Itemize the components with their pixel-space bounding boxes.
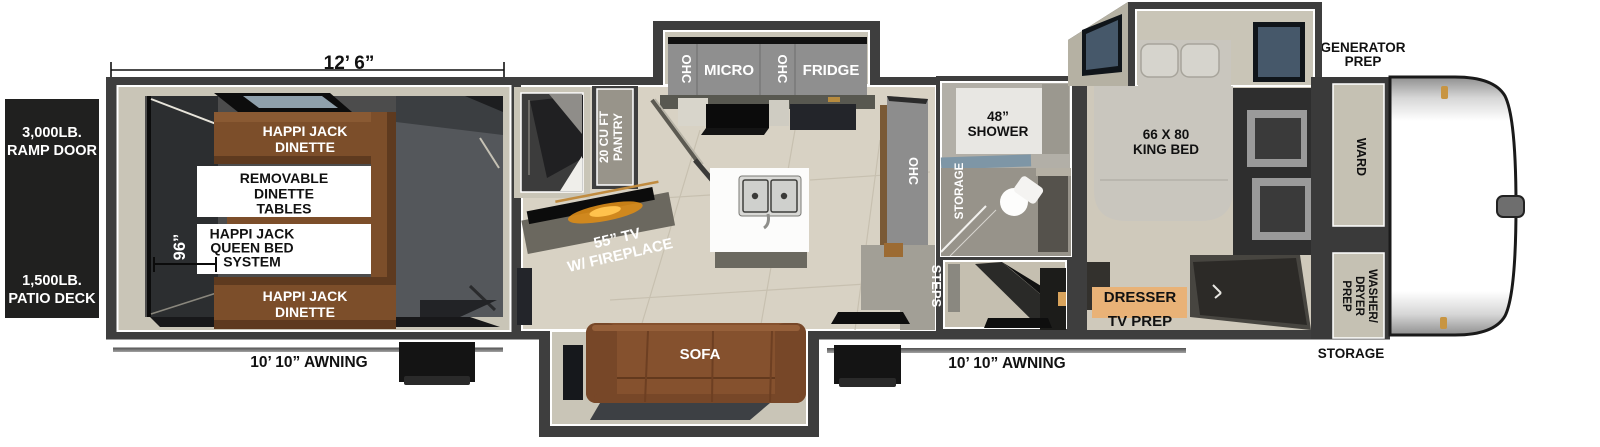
svg-text:PREP: PREP (1340, 280, 1352, 312)
svg-text:STEPS: STEPS (929, 265, 944, 308)
svg-text:FRIDGE: FRIDGE (803, 62, 860, 79)
svg-text:66 X 80: 66 X 80 (1143, 127, 1190, 142)
svg-text:12’ 6”: 12’ 6” (324, 53, 375, 74)
svg-text:GENERATOR: GENERATOR (1320, 40, 1405, 55)
svg-text:MICRO: MICRO (704, 62, 754, 79)
svg-text:10’ 10” AWNING: 10’ 10” AWNING (948, 355, 1065, 372)
svg-text:DRYER: DRYER (1353, 276, 1365, 317)
svg-text:OHC: OHC (679, 55, 694, 85)
svg-text:1,500LB.: 1,500LB. (22, 273, 82, 289)
svg-text:10’ 10” AWNING: 10’ 10” AWNING (250, 354, 367, 371)
svg-text:DINETTE: DINETTE (275, 139, 335, 155)
svg-text:STORAGE: STORAGE (954, 162, 966, 219)
svg-text:HAPPI JACK: HAPPI JACK (263, 288, 348, 304)
svg-text:STORAGE: STORAGE (1318, 346, 1385, 361)
svg-text:48”: 48” (987, 109, 1009, 124)
svg-text:3,000LB.: 3,000LB. (22, 125, 82, 141)
svg-text:DRESSER: DRESSER (1104, 289, 1177, 306)
svg-text:DINETTE: DINETTE (254, 186, 314, 202)
svg-text:PANTRY: PANTRY (611, 113, 625, 161)
svg-text:WASHER/: WASHER/ (1366, 269, 1378, 323)
svg-text:PATIO DECK: PATIO DECK (8, 291, 96, 307)
svg-text:RAMP DOOR: RAMP DOOR (7, 143, 97, 159)
svg-text:SYSTEM: SYSTEM (223, 254, 281, 270)
svg-text:KING BED: KING BED (1133, 142, 1199, 157)
svg-text:WARD: WARD (1354, 138, 1368, 176)
svg-text:PREP: PREP (1345, 54, 1382, 69)
svg-text:TABLES: TABLES (257, 201, 312, 217)
svg-text:SHOWER: SHOWER (968, 124, 1029, 139)
svg-text:OHC: OHC (775, 55, 790, 85)
svg-text:REMOVABLE: REMOVABLE (240, 170, 328, 186)
svg-text:TV PREP: TV PREP (1108, 313, 1172, 330)
svg-text:SOFA: SOFA (680, 346, 721, 363)
svg-text:OHC: OHC (906, 157, 920, 185)
svg-text:96”: 96” (171, 234, 189, 261)
svg-text:20 CU FT: 20 CU FT (597, 110, 611, 163)
svg-text:DINETTE: DINETTE (275, 304, 335, 320)
svg-text:HAPPI JACK: HAPPI JACK (263, 123, 348, 139)
